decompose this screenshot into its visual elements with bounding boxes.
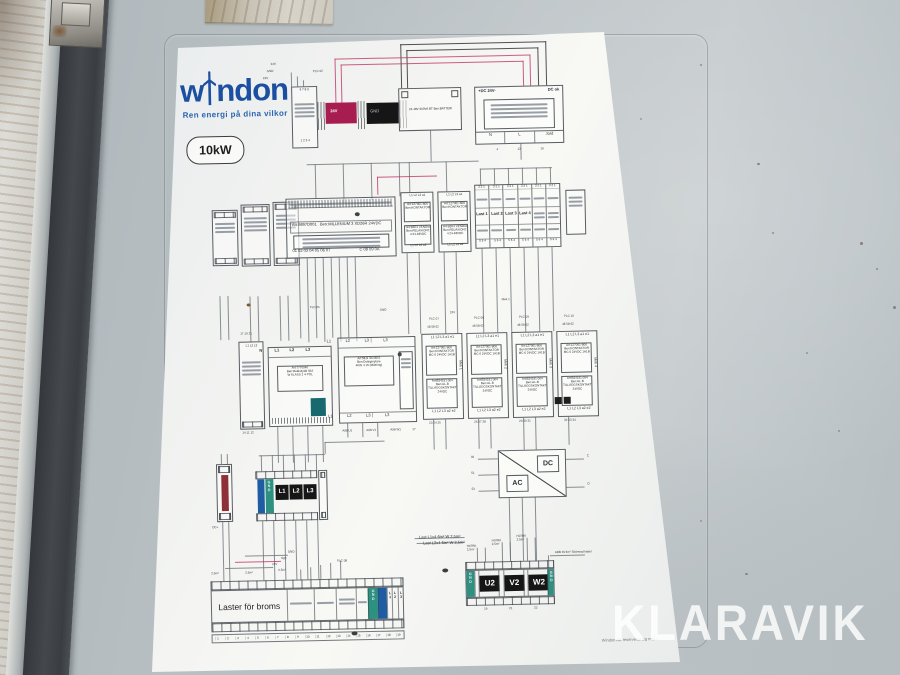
terminal-number: 6 [265,636,270,640]
diagram-paper: w ndon Ren energi på dina vilkor 10kW [150,30,682,675]
speck [700,520,702,522]
terminal-number: 2 [225,637,230,641]
relay-pins-bottom: 1 2 3 4 [293,139,317,143]
strip-main-label: Laster för broms [212,590,287,623]
wire [225,567,273,569]
aux-module [565,189,586,234]
wire [377,177,378,195]
pin-number: 16 [540,147,543,151]
wire-label: A98 U1 [342,429,352,433]
wire [419,253,422,334]
wire [567,487,585,488]
wire [485,548,486,562]
wire [227,296,229,340]
wire [355,257,358,341]
kontaktor-block: L1 L2 L3 a1 e1 Art:127001 B00Ben:KONTAKT… [421,333,464,420]
wire-label: GND [267,70,274,74]
wire [310,567,311,579]
speck [893,306,896,309]
dc-power-supply: +DC 24V- DC ok N L Jord [474,85,564,145]
wire [551,247,554,331]
wire [283,455,284,471]
wire [430,131,432,162]
logo-text-left: w [180,75,204,106]
wire [550,555,585,557]
terminal-number: 18 [386,633,391,637]
wire [400,41,546,45]
paper-smudge [247,303,251,306]
blue-bar [257,479,265,513]
wire [538,247,541,331]
plc-pins-right: C 08 09 0A [359,247,379,252]
terminal-number: 10 [306,635,311,639]
pin-number: 51 [471,472,474,476]
battery-label: 24-48V 600VA BT Ben:BATTERI [400,107,461,112]
wire [331,258,334,338]
speck [806,352,808,354]
wire [490,418,492,448]
terminal-number: 13 [336,634,341,638]
wire [335,59,337,103]
wire [287,296,289,341]
terminal-number: 16 [366,634,371,638]
wire [307,258,310,342]
breaker-module: L1 L2 L3 L3 Art:5811 SO BR2Ben:Dvärgbryt… [337,336,417,424]
gnd-terminal-box: GND [366,102,398,124]
paper-smudge [442,568,448,572]
wire [545,41,547,85]
motor-terminal-strip: GND U2 V2 W2 GND 19 21 23 [465,560,555,616]
speck [640,118,642,120]
wire [315,258,318,338]
wire [305,454,306,470]
wire [444,252,447,333]
wire [494,168,495,184]
kontaktor-block: L1 L2 L3 a1 e1 Art:127001 B00Ben:KONTAKT… [466,332,509,419]
terminal-number: 14 [346,634,351,638]
wire [479,490,499,491]
terminal-number: 17 [376,634,381,638]
speck [876,268,878,270]
wire [523,61,525,86]
wire-label: A98 V1 [366,429,376,433]
wire [325,441,385,443]
wire [537,47,539,85]
terminal-comb [357,101,366,129]
terminal-number: 8 [285,635,290,639]
breaker-label-box: Art:7770040Ben:Reläskydd 40AW KLASS 2 4-… [277,365,324,392]
wire [502,542,503,561]
wire [297,76,298,86]
side-label: Mek 3 [548,358,552,368]
gnd-bar: GND [368,588,379,619]
gnd-bar: GND [548,569,554,595]
wire [510,248,513,332]
wire [480,167,552,170]
wire [219,296,221,340]
wire [316,454,317,470]
wire [347,257,350,337]
terminal-number: 19 [396,633,401,637]
wire [535,418,537,450]
pin-number: 13 [517,148,520,152]
wire [566,459,584,460]
relay-contactor: L1 L2 L3 a1 Art:127001 B00Ben:KONTAKTOR … [437,191,471,253]
dc-terminal-strip [216,464,233,522]
wire [291,73,292,87]
terminal-number: 9 [295,635,300,639]
wiring-diagram: w ndon Ren energi på dina vilkor 10kW [144,24,689,675]
wire [307,161,479,166]
wire [478,458,498,459]
wire [272,455,273,471]
wire [261,455,262,471]
acdc-converter: DC AC [498,449,567,498]
wire [257,296,259,341]
wire [456,252,459,333]
wire [317,520,319,579]
gnd-bar: GND [265,479,274,513]
wire [478,474,498,475]
photo-scene: w ndon Ren energi på dina vilkor 10kW [0,0,900,675]
plc-module: Art:9897D001 Ben:MILLENIUM 3 XD26R 24VDC… [285,196,396,258]
wire [445,419,447,449]
wire [377,423,378,437]
measure-module: L1 L2 L3 [238,341,265,430]
wire [228,522,230,581]
terminal-number: 12 [326,635,331,639]
wire-label: Mek 1 [502,298,510,302]
wire [510,542,511,561]
load-relay-grid: 3 2 1Last 15 6 4 3 2 1Last 25 6 4 3 2 1L… [474,183,561,249]
wire [294,455,295,471]
wire-label: 24V [263,77,268,81]
wire [406,47,538,51]
power-rating-badge: 10kW [186,136,245,165]
wire [371,163,373,200]
pin-number: D [587,482,589,486]
wire [522,498,524,561]
wire [477,548,478,562]
relay-module: 6 7 8 9 1 2 3 4 [291,86,318,149]
speck [772,232,774,234]
wire [262,521,264,580]
speck [745,573,748,575]
psu-header-right: DC ok [548,87,560,92]
plc-pins-left: 01 02 03 04 05 06 07 [292,248,330,253]
relay-pins-top: 6 7 8 9 [292,88,316,92]
terminal-number: 11 [316,635,321,639]
wire [277,427,279,463]
relay-contactor: L1 L2 L3 a1 Art:127001 B00Ben:KONTAKTOR … [400,192,434,254]
pin-number: C [587,454,589,458]
wire-label: DC+ [212,526,218,530]
wire [306,520,308,579]
psu-header-left: +DC 24V- [478,88,496,93]
plc-label-box: Art:9897D001 Ben:MILLENIUM 3 XD26R 24VDC [290,219,392,233]
wire [295,521,297,580]
speck [700,64,702,66]
kontaktor-block: L1 L2 L3 a1 e1 Art:127001 B00Ben:KONTAKT… [556,330,599,417]
screw-terminal [401,91,408,98]
logo-text-right: ndon [216,74,288,106]
wire [446,161,448,191]
switch-module [212,210,239,267]
terminal-number: 3 [235,637,240,641]
phase-terminal-group: GND L1 L2 L3 [255,470,326,521]
wire [222,522,224,581]
wire [362,423,363,437]
wire [400,44,402,88]
pin-number: 53 [472,488,475,492]
wire [227,454,228,464]
divider-label-box: Art:5811 SO BR2Ben:Dvärgbrytare4KW 4 16 … [344,355,395,386]
side-label: Mek 4 [593,357,597,367]
speck [838,430,840,432]
wire-label: 24V [450,311,455,315]
screw-terminal [451,90,458,97]
wire [335,55,531,60]
brand-tagline: Ren energi på dina vilkor [183,109,288,120]
wire [527,538,528,561]
side-label: Mek 2 [503,359,507,369]
wire [508,168,509,184]
wire [496,248,499,332]
brake-load-terminal-strip: Laster för broms GND L1 L2 L3 1234567891… [210,577,404,645]
side-label: Mek 1 [458,360,462,370]
wire-label: PLC 05 [310,306,320,310]
terminal-numbers: 12345678910111213141516171819 [212,630,405,643]
wire [520,144,521,160]
pin-number: 17 [412,428,415,432]
wire [307,426,309,462]
wire [300,569,301,579]
wire [325,442,326,454]
divider-side-channel [399,351,414,409]
red-bar [221,475,229,511]
speck [860,242,863,245]
wire [341,61,524,66]
wire [406,50,408,88]
pin-numbers: 17 19 21 [240,332,252,336]
wire [273,521,275,580]
dc-label-box: DC [537,455,559,472]
wire [221,454,222,464]
paper-smudge [398,352,402,356]
wire [529,55,531,86]
wire-label: GND [380,309,387,313]
wire [279,296,281,341]
wind-turbine-icon [203,72,217,106]
terminal-number: 1 [215,637,220,641]
switch-module [241,204,271,267]
wire [377,176,437,178]
wire [340,561,341,579]
battery-box: 24-48V 600VA BT Ben:BATTERI [398,87,462,131]
wire-label: A98 W1 [390,428,401,432]
wire [480,169,481,185]
wire [323,258,326,342]
dark-terminal [564,397,571,404]
wire [536,167,537,183]
wire [299,258,302,338]
wire [315,164,317,198]
pin-number: 4 [496,148,498,152]
24v-terminal-box: 24V [325,102,356,124]
wire [550,167,551,183]
pin-number: 49 [471,456,474,460]
wire [341,65,343,103]
wire [339,258,342,342]
speck [757,163,760,165]
wire-label: 24V [271,63,276,67]
terminal-number: 4 [245,636,250,640]
terminal-number: 7 [275,636,280,640]
wire [320,565,321,579]
wire [330,563,331,579]
wire [522,168,523,184]
ac-label-box: AC [506,475,528,492]
klaravik-watermark: KLARAVIK [612,594,868,652]
dark-terminal [555,397,562,404]
wire [407,253,410,334]
pin-numbers: 14 11 12 [242,431,254,435]
wire-label: PLC 02 [313,70,323,74]
windon-logo: w ndon [180,71,289,107]
psu-label-area [483,98,555,129]
terminal-number: 5 [255,636,260,640]
wire [399,162,401,196]
kontaktor-block: L1 L2 L3 a1 e1 Art:127001 B00Ben:KONTAKT… [511,331,554,418]
psu-terminals: N L Jord [476,130,563,144]
